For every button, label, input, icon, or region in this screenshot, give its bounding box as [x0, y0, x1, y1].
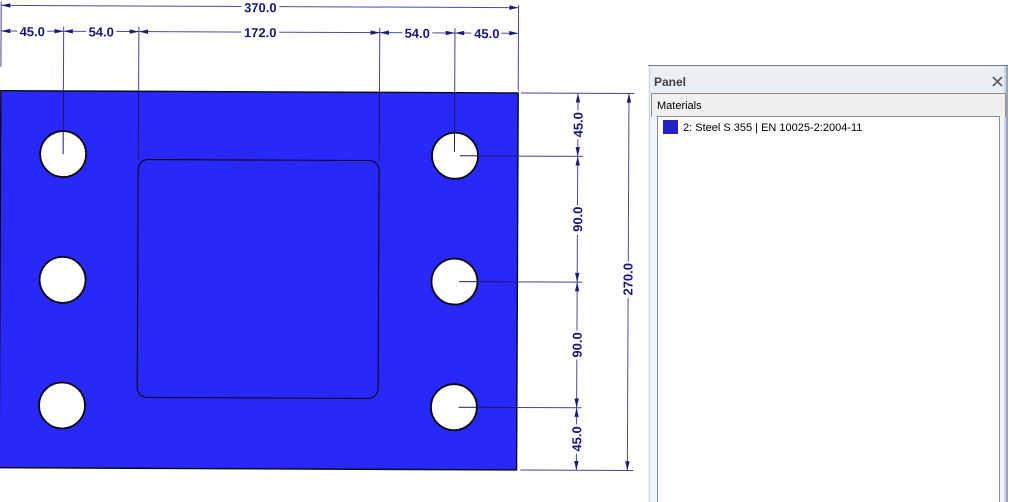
svg-text:54.0: 54.0 — [405, 26, 430, 41]
svg-text:270.0: 270.0 — [620, 263, 635, 296]
svg-text:45.0: 45.0 — [571, 112, 586, 137]
svg-text:172.0: 172.0 — [244, 25, 277, 40]
svg-text:45.0: 45.0 — [20, 24, 45, 39]
svg-text:370.0: 370.0 — [244, 0, 277, 15]
svg-text:90.0: 90.0 — [570, 332, 585, 357]
svg-text:45.0: 45.0 — [569, 426, 584, 451]
svg-text:45.0: 45.0 — [474, 26, 499, 41]
svg-text:54.0: 54.0 — [89, 24, 114, 39]
svg-text:90.0: 90.0 — [570, 207, 585, 232]
